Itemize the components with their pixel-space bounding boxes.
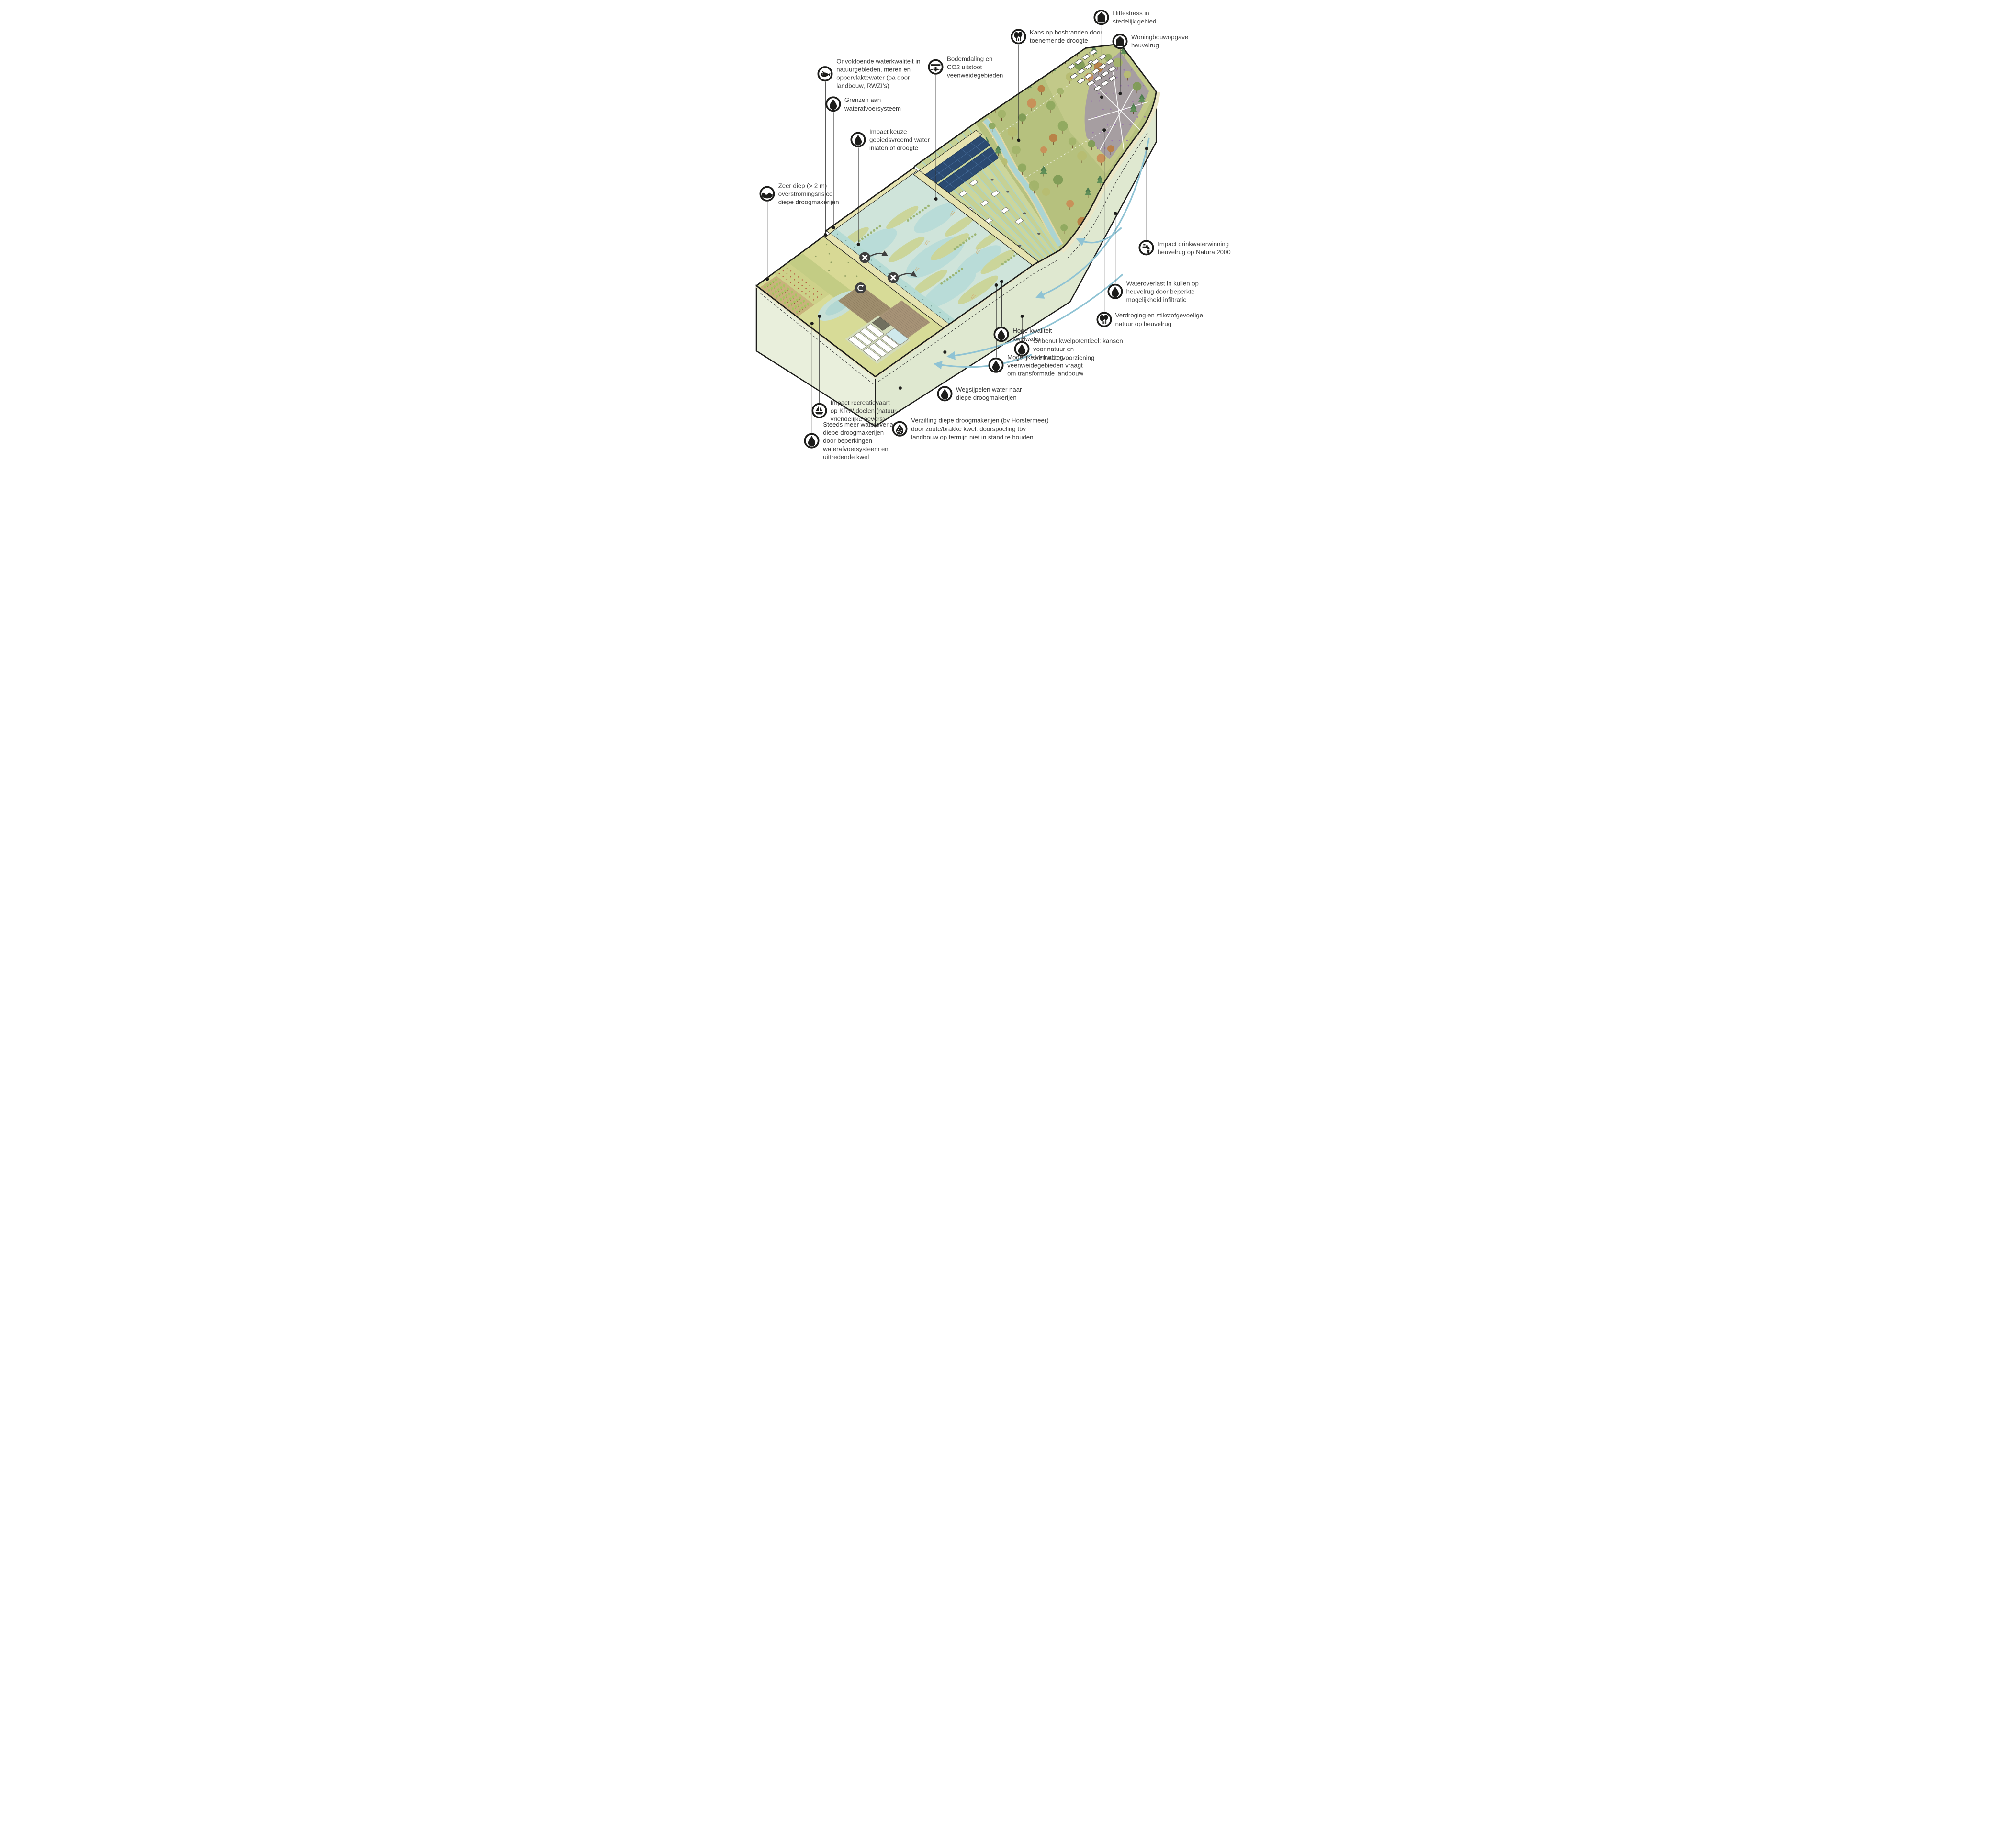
boat-icon [811, 403, 827, 418]
callout-wegsijpelen: Wegsijpelen water naardiepe droogmakerij… [937, 385, 1022, 402]
droplet-icon [988, 358, 1004, 373]
callout-vernatting: Mogelijke vernattingveenweidegebieden vr… [988, 353, 1083, 377]
droplet-icon [804, 433, 820, 449]
callout-zeer-diep: Zeer diep (> 2 m)overstromingsrisicodiep… [759, 181, 839, 206]
tap-icon [1138, 240, 1154, 256]
callout-recreatievaart: Impact recreatievaartop KRW doelen (natu… [811, 398, 899, 423]
droplet-icon [1107, 283, 1123, 299]
callout-steeds-meer: Steeds meer wateroverlastdiepe droogmake… [804, 420, 898, 462]
trees-icon [1011, 29, 1026, 45]
droplet-icon [850, 132, 866, 147]
callout-gebiedsvreemd: Impact keuzegebiedsvreemd waterinlaten o… [850, 127, 930, 152]
callout-grenzen: Grenzen aanwaterafvoersysteem [825, 96, 901, 112]
callout-bosbranden: Kans op bosbranden doortoenemende droogt… [1011, 28, 1102, 45]
callout-verdroging: Verdroging en stikstofgevoeligenatuur op… [1096, 311, 1203, 327]
salt-droplet-icon [892, 421, 908, 437]
fish-icon [817, 66, 833, 81]
subsidence-icon [928, 59, 944, 75]
house-icon [1112, 34, 1128, 49]
callout-waterkwaliteit: Onvoldoende waterkwaliteit innatuurgebie… [817, 57, 920, 90]
wave-icon [759, 186, 775, 202]
droplet-icon [825, 96, 841, 112]
droplet-icon [937, 386, 953, 402]
callout-woningbouw: Woningbouwopgaveheuvelrug [1112, 33, 1188, 49]
house-icon [1093, 10, 1109, 25]
trees-icon [1096, 312, 1112, 327]
droplet-icon [993, 327, 1009, 342]
callout-verzilting: Verzilting diepe droogmakerijen (bv Hors… [892, 417, 1048, 441]
callout-drinkwaterwinning: Impact drinkwaterwinningheuvelrug op Nat… [1138, 240, 1231, 256]
callout-hittestress: Hittestress instedelijk gebied [1093, 9, 1156, 25]
infographic-canvas: Hittestress instedelijk gebied Kans op b… [747, 0, 1245, 462]
callout-bodemdaling: Bodemdaling enCO2 uitstootveenweidegebie… [928, 55, 1003, 79]
callout-wateroverlast-kuilen: Wateroverlast in kuilen opheuvelrug door… [1107, 279, 1199, 304]
